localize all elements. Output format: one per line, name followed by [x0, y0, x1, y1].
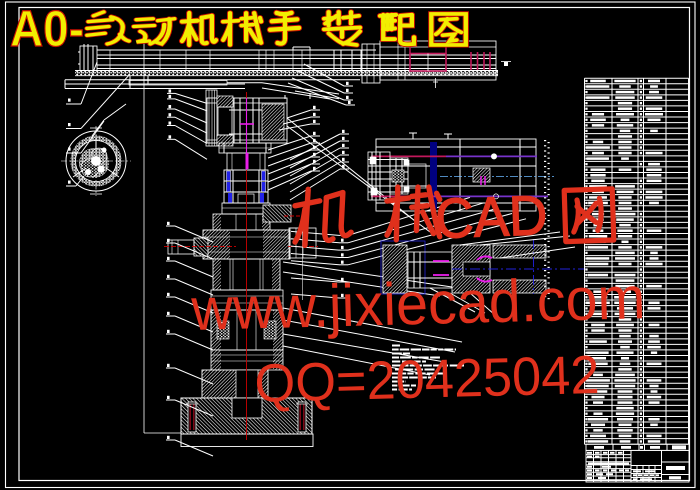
svg-text:A0-: A0-	[10, 0, 84, 57]
svg-text:QQ=20425042: QQ=20425042	[254, 345, 600, 414]
svg-text:CAD: CAD	[434, 183, 548, 250]
svg-text:www.jixiecad.com: www.jixiecad.com	[190, 264, 647, 343]
